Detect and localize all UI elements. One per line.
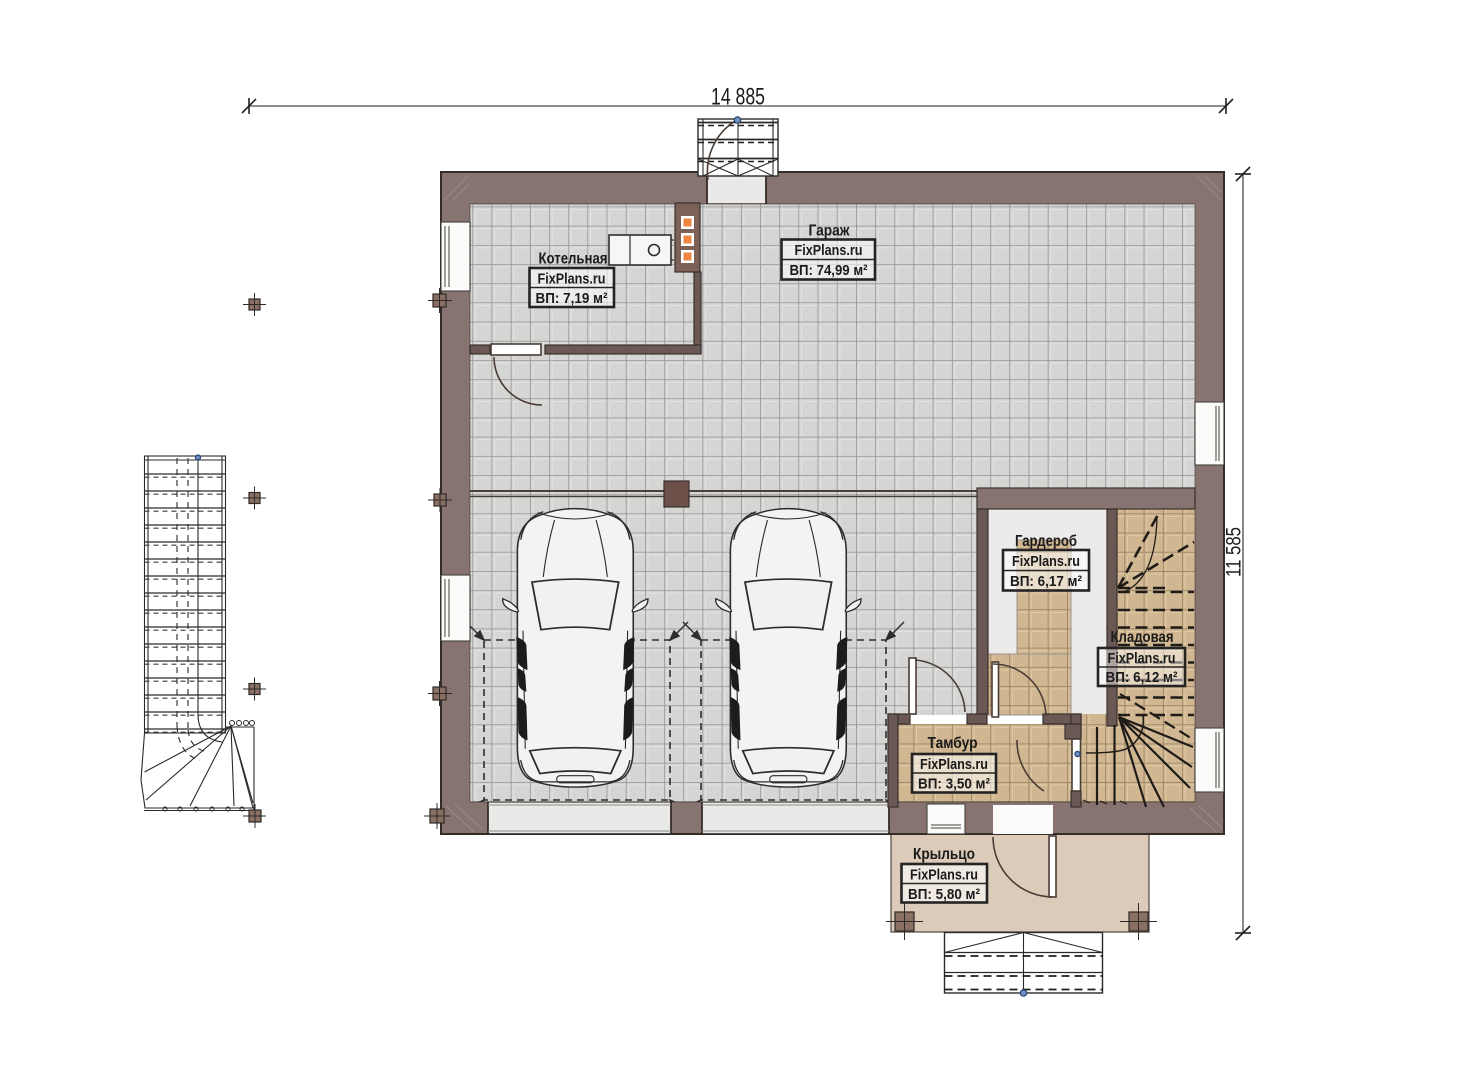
- svg-text:ВП: 74,99 м²: ВП: 74,99 м²: [790, 262, 868, 279]
- svg-text:ВП: 5,80 м²: ВП: 5,80 м²: [908, 886, 980, 903]
- svg-text:Котельная: Котельная: [539, 251, 608, 268]
- svg-text:FixPlans.ru: FixPlans.ru: [1108, 650, 1176, 667]
- svg-text:11 585: 11 585: [1223, 527, 1246, 577]
- svg-text:Кладовая: Кладовая: [1111, 629, 1174, 646]
- svg-text:ВП: 6,17 м²: ВП: 6,17 м²: [1010, 573, 1082, 590]
- svg-text:Тамбур: Тамбур: [928, 735, 978, 752]
- svg-text:Гараж: Гараж: [809, 223, 851, 240]
- svg-text:Крыльцо: Крыльцо: [913, 846, 975, 863]
- svg-text:FixPlans.ru: FixPlans.ru: [1012, 553, 1080, 570]
- svg-text:ВП: 6,12 м²: ВП: 6,12 м²: [1106, 669, 1178, 686]
- svg-text:FixPlans.ru: FixPlans.ru: [795, 242, 863, 259]
- svg-text:14 885: 14 885: [711, 84, 765, 111]
- svg-text:Гардероб: Гардероб: [1015, 533, 1077, 550]
- svg-text:FixPlans.ru: FixPlans.ru: [910, 867, 978, 884]
- svg-text:ВП: 3,50 м²: ВП: 3,50 м²: [918, 776, 990, 793]
- svg-text:FixPlans.ru: FixPlans.ru: [538, 271, 606, 288]
- svg-text:ВП: 7,19 м²: ВП: 7,19 м²: [536, 290, 608, 307]
- svg-text:FixPlans.ru: FixPlans.ru: [920, 756, 988, 773]
